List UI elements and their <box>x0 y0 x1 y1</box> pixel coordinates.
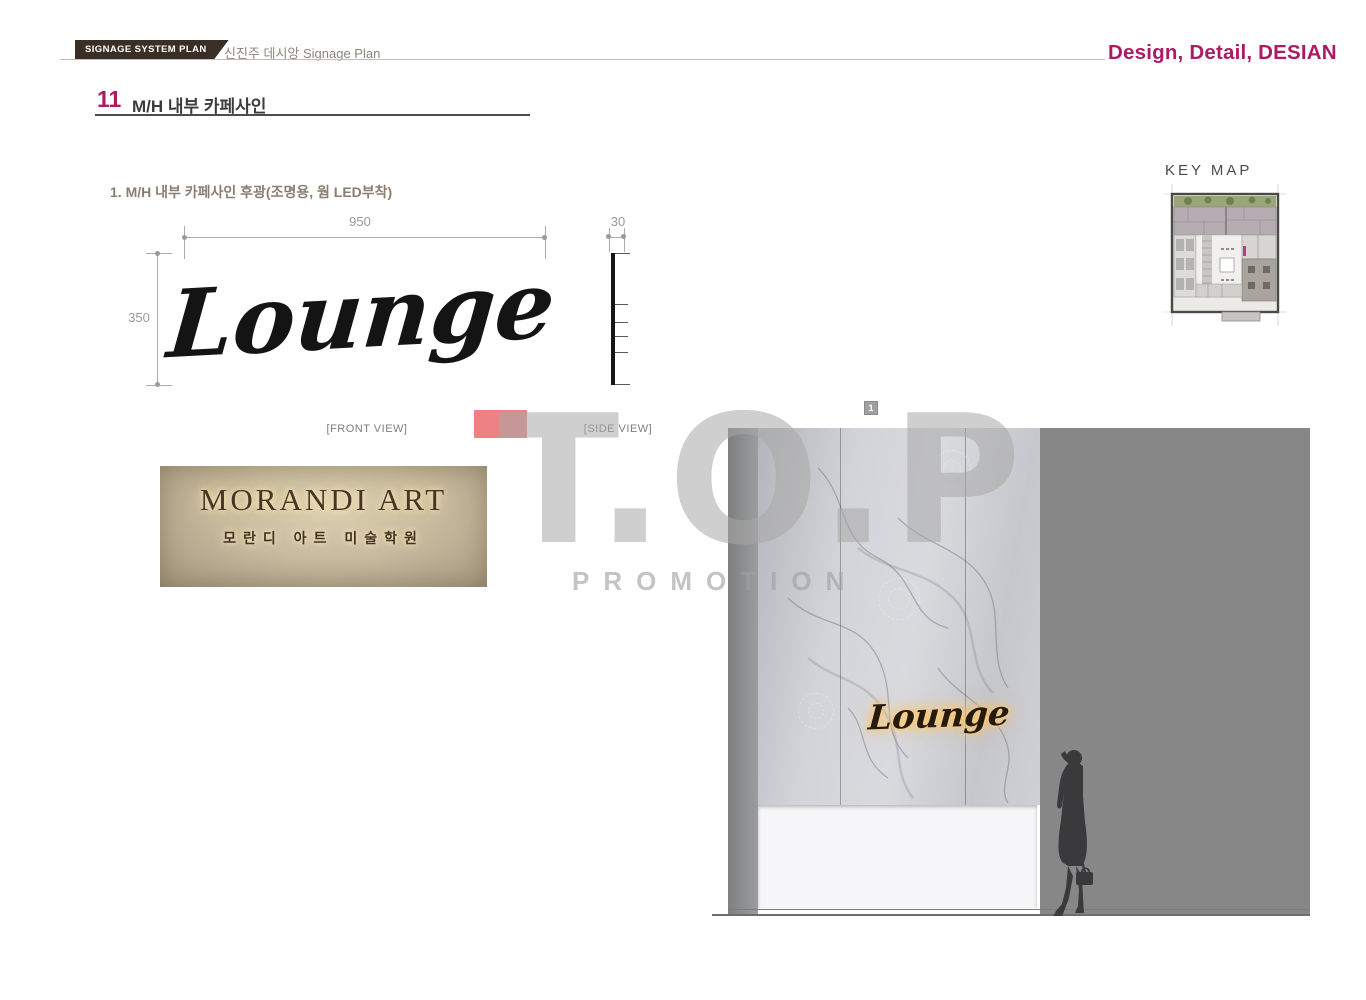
dimension-height-line <box>157 253 158 385</box>
key-map-floor-plan <box>1164 184 1286 326</box>
dimension-ext-line <box>609 228 610 252</box>
header-divider <box>60 59 1105 60</box>
key-map-label: KEY MAP <box>1165 162 1252 179</box>
key-map-location-marker <box>1243 246 1246 256</box>
side-view-tick <box>615 304 628 305</box>
side-view-profile-bar <box>611 253 615 385</box>
dimension-width-label: 950 <box>340 214 380 229</box>
dimension-ext-line <box>624 228 625 252</box>
company-slogan: Design, Detail, DESIAN <box>1108 41 1338 65</box>
marble-wall: Lounge <box>758 428 1040 805</box>
dimension-depth-label: 30 <box>605 214 631 229</box>
side-view-tick <box>615 322 628 323</box>
title-underline <box>95 114 530 116</box>
photo-sign-text: MORANDI ART <box>160 482 487 518</box>
dimension-endpoint <box>606 234 611 239</box>
backlit-lounge-sign: Lounge <box>853 693 1026 739</box>
section-number: 11 <box>97 86 121 113</box>
spec-subtitle: 1. M/H 내부 카페사인 후광(조명용, 웜 LED부착) <box>110 182 392 202</box>
watermark-stamp <box>798 693 834 729</box>
photo-sign-subtext: 모란디 아트 미술학원 <box>160 528 487 548</box>
reference-photo-morandi-art: MORANDI ART 모란디 아트 미술학원 <box>160 466 487 587</box>
lower-marble-band <box>758 805 1037 908</box>
dimension-endpoint <box>182 235 187 240</box>
dimension-height-label: 350 <box>122 310 156 325</box>
panel-seam <box>840 428 841 805</box>
front-view-label: [FRONT VIEW] <box>287 423 447 435</box>
side-view-tick <box>615 253 630 254</box>
side-view-tick <box>615 384 630 385</box>
dimension-endpoint <box>155 251 160 256</box>
dimension-endpoint <box>621 234 626 239</box>
callout-number-badge: 1 <box>864 401 878 415</box>
side-view-tick <box>615 336 628 337</box>
dimension-endpoint <box>155 382 160 387</box>
person-silhouette <box>1043 748 1101 916</box>
elevation-rendering: Lounge 1 <box>728 420 1310 920</box>
lounge-sign-artwork: Lounge <box>162 229 560 400</box>
floor-line <box>728 909 1310 910</box>
floor-baseline <box>712 914 1310 916</box>
watermark-stamp <box>933 450 971 488</box>
watermark-stamp <box>878 578 920 620</box>
side-wall-return <box>728 428 758 914</box>
watermark-accent-block <box>474 410 527 438</box>
side-view-label: [SIDE VIEW] <box>568 423 668 435</box>
signage-system-plan-badge: SIGNAGE SYSTEM PLAN <box>75 40 229 60</box>
panel-seam <box>965 428 966 805</box>
side-view-tick <box>615 352 628 353</box>
